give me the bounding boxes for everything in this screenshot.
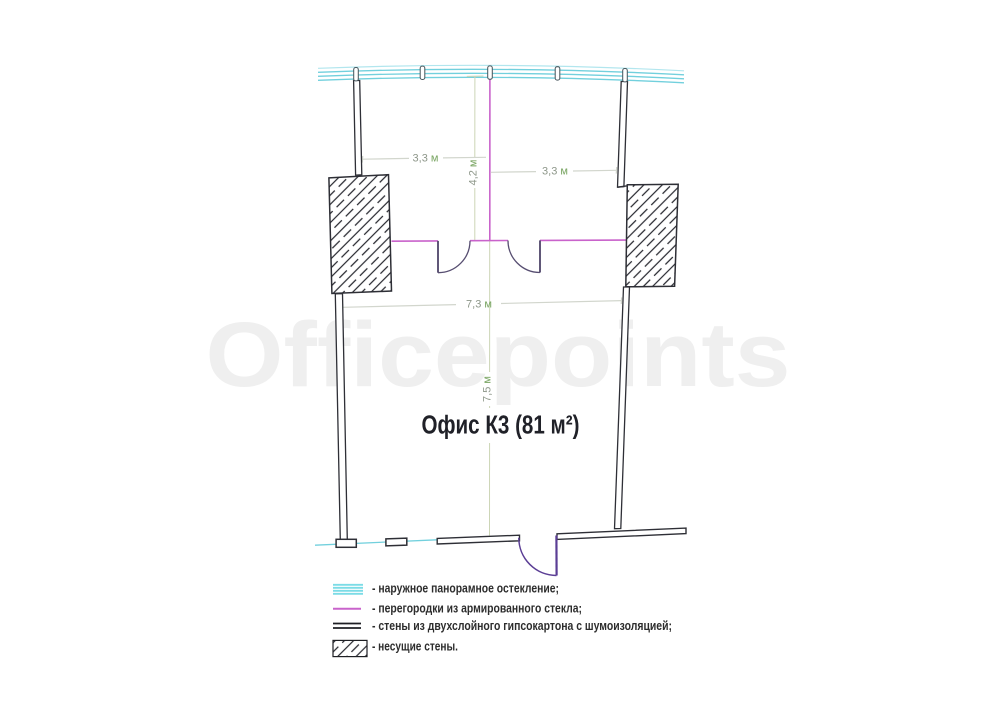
svg-text:- стены из двухслойного гипсок: - стены из двухслойного гипсокартона с ш… [372,618,672,633]
svg-text:- перегородки из армированного: - перегородки из армированного стекла; [372,601,582,616]
svg-text:7,3 м: 7,3 м [466,298,492,310]
svg-text:4,2 м: 4,2 м [467,160,479,186]
svg-text:3,3 м: 3,3 м [542,166,568,178]
svg-text:7,5 м: 7,5 м [482,376,494,402]
svg-text:Officepoints: Officepoints [206,304,791,406]
svg-text:Офис К3 (81 м²): Офис К3 (81 м²) [422,412,580,440]
svg-text:3,3 м: 3,3 м [413,152,439,164]
svg-text:- несущие стены.: - несущие стены. [372,639,458,654]
svg-text:- наружное панорамное остеклен: - наружное панорамное остекление; [372,581,559,596]
